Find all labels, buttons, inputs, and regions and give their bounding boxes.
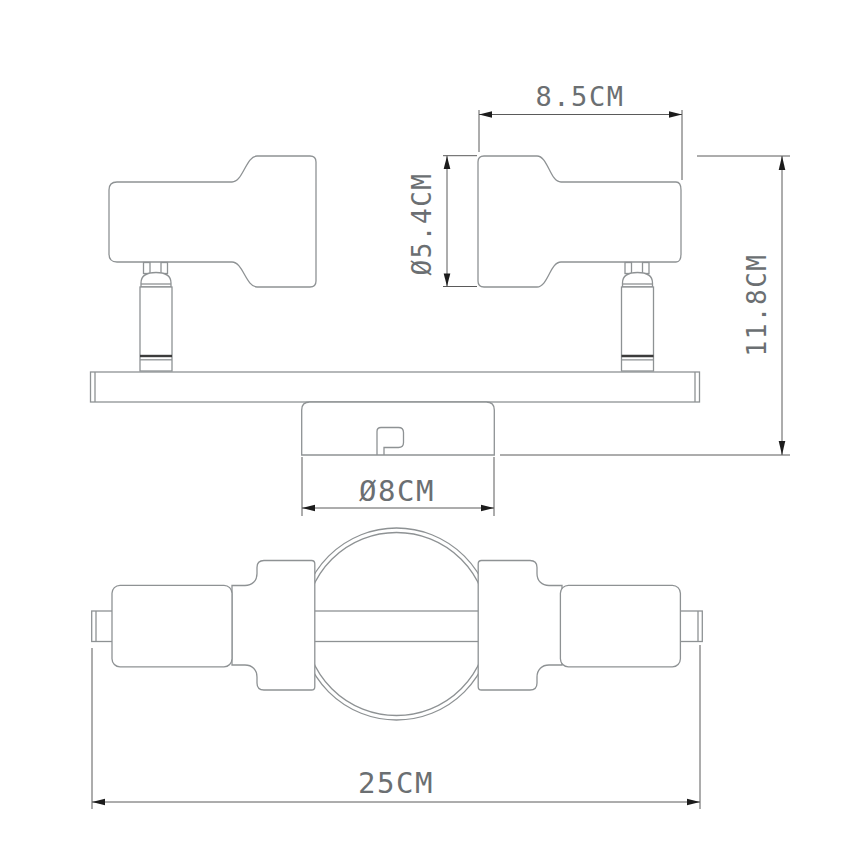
technical-drawing-canvas: 8.5CM Ø5.4CM 11.8CM Ø8CM (0, 0, 868, 868)
canopy-box (302, 402, 495, 455)
left-shade-block (232, 561, 315, 691)
swivel-stem-right (622, 263, 654, 372)
right-spotlight-head (478, 156, 681, 287)
canopy-circle (301, 528, 493, 720)
mounting-bar (91, 372, 700, 402)
arrowhead (302, 505, 315, 512)
arrowhead (481, 505, 494, 512)
right-shade-block (478, 561, 562, 691)
arrowhead (779, 156, 786, 170)
arrowhead (669, 111, 682, 118)
swivel-stem-left (140, 263, 172, 372)
dim-label-head-width: 8.5CM (536, 81, 625, 112)
dim-label-fixture-height: 11.8CM (742, 254, 772, 357)
dim-label-fixture-width: 25CM (358, 766, 434, 800)
technical-drawing-page: 8.5CM Ø5.4CM 11.8CM Ø8CM (0, 0, 868, 868)
right-body (560, 585, 680, 667)
top-view-drawing: 8.5CM Ø5.4CM 11.8CM Ø8CM (91, 81, 791, 516)
arrowhead (687, 799, 700, 806)
dimension-head-diameter: Ø5.4CM (407, 156, 477, 287)
arrowhead (92, 799, 105, 806)
arrowhead (444, 274, 451, 287)
arrowhead (479, 111, 492, 118)
bottom-view-drawing: 25CM (92, 528, 703, 809)
arrowhead (779, 441, 786, 455)
arrowhead (444, 156, 451, 169)
right-head-underside (478, 561, 680, 691)
left-body (112, 585, 232, 667)
dimension-canopy-diameter: Ø8CM (302, 457, 494, 516)
dim-label-head-diameter: Ø5.4CM (407, 173, 437, 276)
dim-label-canopy-diameter: Ø8CM (359, 474, 435, 508)
left-head-underside (112, 561, 315, 691)
left-spotlight-head (109, 156, 316, 287)
